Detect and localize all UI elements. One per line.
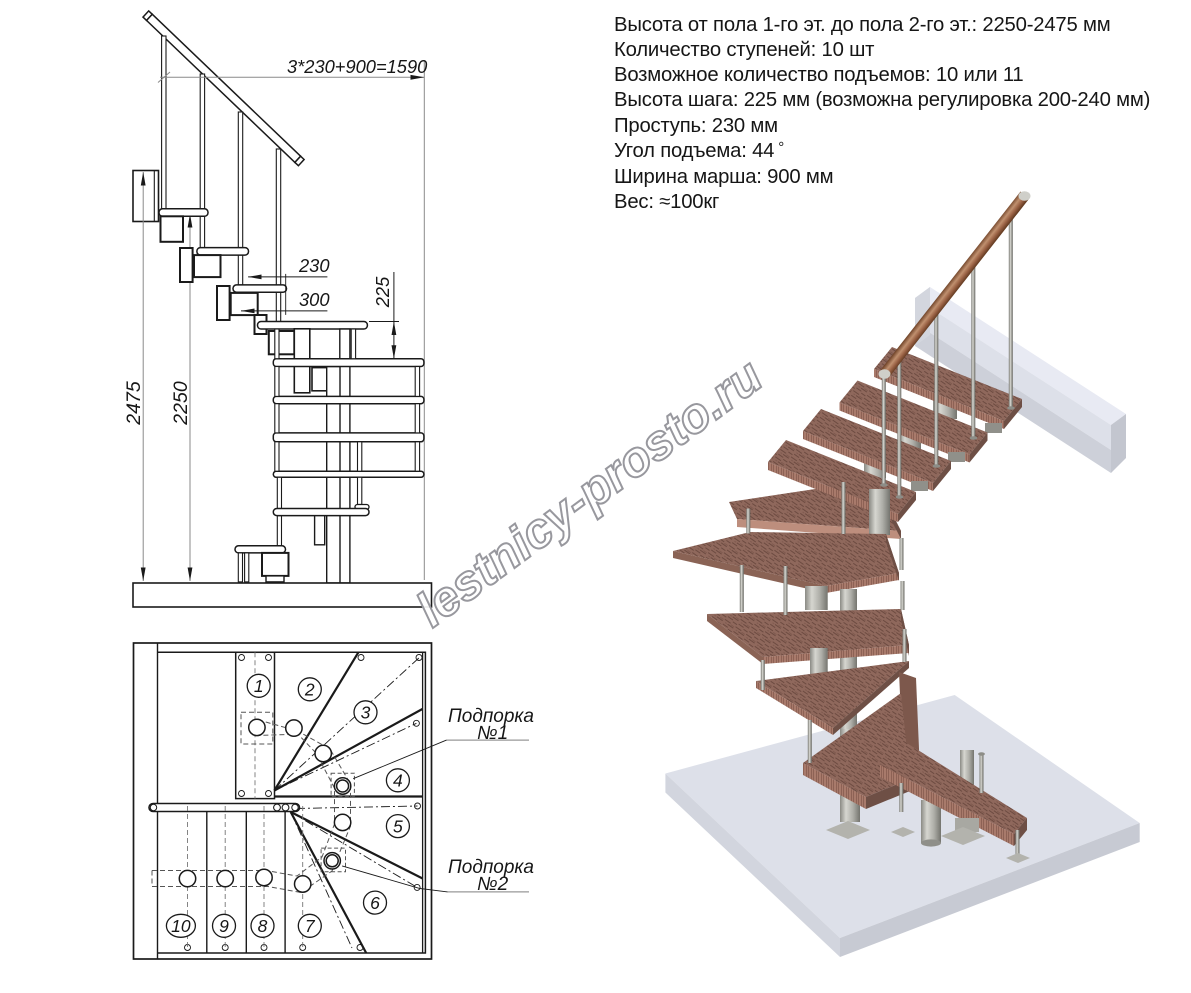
svg-text:2250: 2250 (170, 381, 192, 426)
svg-text:Угол подъема: 44 °: Угол подъема: 44 ° (614, 139, 784, 162)
svg-text:Вес: ≈100кг: Вес: ≈100кг (614, 191, 719, 213)
svg-text:8: 8 (258, 916, 268, 936)
svg-text:1: 1 (254, 676, 264, 696)
svg-text:225: 225 (372, 276, 393, 308)
svg-text:3: 3 (361, 703, 371, 723)
svg-text:2475: 2475 (123, 381, 145, 426)
svg-text:230: 230 (298, 255, 330, 276)
svg-text:4: 4 (393, 771, 403, 791)
svg-text:10: 10 (171, 916, 191, 936)
svg-text:7: 7 (305, 916, 316, 936)
svg-text:6: 6 (370, 893, 380, 913)
svg-text:Проступь: 230 мм: Проступь: 230 мм (614, 115, 778, 137)
svg-text:Количество ступеней: 10 шт: Количество ступеней: 10 шт (614, 39, 874, 61)
svg-text:2: 2 (304, 680, 315, 700)
svg-text:3*230+900=1590: 3*230+900=1590 (287, 56, 428, 77)
svg-text:Высота шага: 225 мм (возможна: Высота шага: 225 мм (возможна регулировк… (614, 89, 1150, 111)
svg-text:5: 5 (393, 816, 403, 836)
svg-text:9: 9 (219, 916, 229, 936)
svg-text:Высота от пола 1-го эт. до пол: Высота от пола 1-го эт. до пола 2-го эт.… (614, 14, 1111, 36)
svg-text:Ширина марша: 900 мм: Ширина марша: 900 мм (614, 166, 833, 188)
svg-text:№1: №1 (477, 723, 508, 744)
svg-text:300: 300 (299, 289, 330, 310)
svg-text:Возможное количество подъемов:: Возможное количество подъемов: 10 или 11 (614, 64, 1023, 86)
